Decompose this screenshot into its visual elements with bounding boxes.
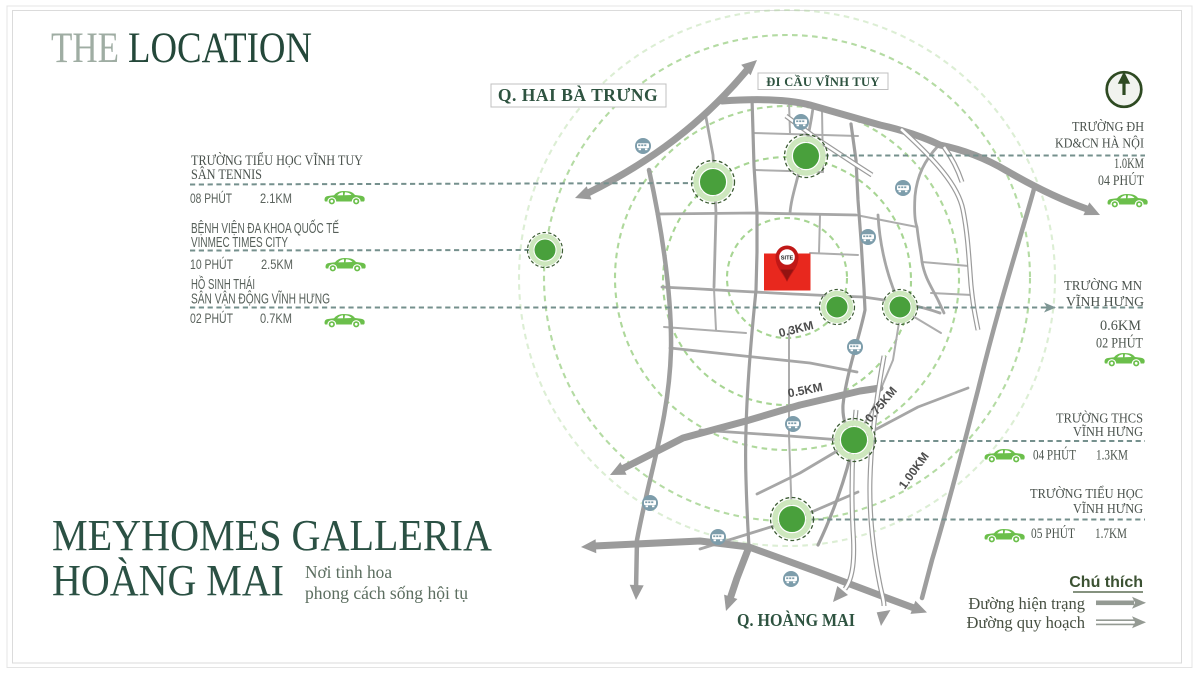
- svg-text:02 PHÚT: 02 PHÚT: [190, 310, 233, 326]
- svg-text:ĐI CẦU VĨNH TUY: ĐI CẦU VĨNH TUY: [766, 74, 879, 89]
- svg-text:TRƯỜNG THCS: TRƯỜNG THCS: [1056, 410, 1143, 427]
- svg-text:0.7KM: 0.7KM: [260, 310, 292, 326]
- svg-text:SÂN TENNIS: SÂN TENNIS: [191, 166, 262, 183]
- svg-text:Chú thích: Chú thích: [1069, 574, 1143, 591]
- svg-text:Nơi tinh hoa: Nơi tinh hoa: [305, 562, 392, 582]
- svg-text:02 PHÚT: 02 PHÚT: [1096, 335, 1143, 352]
- svg-text:08 PHÚT: 08 PHÚT: [190, 190, 232, 206]
- svg-text:VĨNH HƯNG: VĨNH HƯNG: [1073, 424, 1143, 440]
- svg-text:TRƯỜNG ĐH: TRƯỜNG ĐH: [1072, 118, 1144, 135]
- svg-text:1.7KM: 1.7KM: [1095, 526, 1127, 542]
- svg-text:Đường hiện trạng: Đường hiện trạng: [968, 594, 1085, 613]
- svg-text:VINMEC TIMES CITY: VINMEC TIMES CITY: [191, 234, 288, 251]
- svg-text:TRƯỜNG MN: TRƯỜNG MN: [1064, 277, 1142, 294]
- svg-text:SÂN VẬN ĐỘNG VĨNH HƯNG: SÂN VẬN ĐỘNG VĨNH HƯNG: [191, 291, 330, 308]
- svg-text:2.5KM: 2.5KM: [261, 256, 293, 272]
- svg-text:SITE: SITE: [781, 256, 794, 262]
- svg-text:Đường quy hoạch: Đường quy hoạch: [967, 613, 1086, 632]
- svg-text:Q. HAI BÀ TRƯNG: Q. HAI BÀ TRƯNG: [498, 85, 658, 105]
- svg-text:VĨNH HƯNG: VĨNH HƯNG: [1073, 501, 1143, 517]
- svg-text:04 PHÚT: 04 PHÚT: [1098, 172, 1144, 189]
- svg-text:10 PHÚT: 10 PHÚT: [190, 256, 233, 272]
- svg-text:MEYHOMES GALLERIA: MEYHOMES GALLERIA: [52, 511, 492, 560]
- svg-text:TRƯỜNG TIỂU HỌC: TRƯỜNG TIỂU HỌC: [1030, 485, 1143, 502]
- svg-text:THE: THE: [51, 25, 119, 72]
- svg-text:VĨNH HƯNG: VĨNH HƯNG: [1066, 294, 1144, 310]
- svg-text:phong cách sống hội tụ: phong cách sống hội tụ: [305, 583, 468, 603]
- svg-text:05 PHÚT: 05 PHÚT: [1031, 525, 1075, 542]
- svg-text:HOÀNG MAI: HOÀNG MAI: [52, 556, 284, 605]
- svg-text:1.3KM: 1.3KM: [1096, 448, 1128, 464]
- svg-text:KD&CN HÀ NỘI: KD&CN HÀ NỘI: [1055, 135, 1144, 152]
- svg-text:LOCATION: LOCATION: [128, 25, 312, 72]
- svg-text:1.0KM: 1.0KM: [1114, 156, 1144, 172]
- svg-text:04 PHÚT: 04 PHÚT: [1033, 447, 1076, 464]
- svg-text:0.6KM: 0.6KM: [1100, 318, 1141, 334]
- svg-text:2.1KM: 2.1KM: [260, 190, 292, 206]
- svg-text:Q. HOÀNG MAI: Q. HOÀNG MAI: [737, 609, 855, 630]
